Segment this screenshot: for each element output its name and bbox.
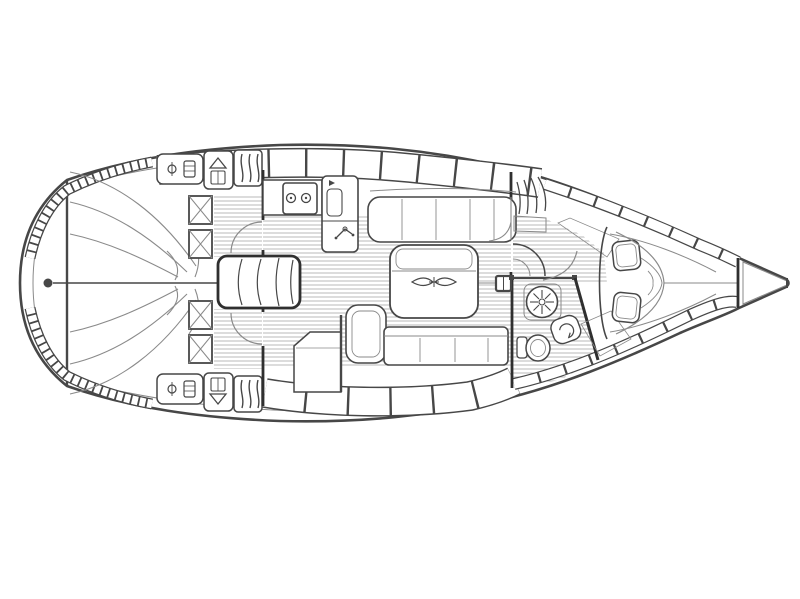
vent-box-icon xyxy=(157,374,203,404)
hatch-icon xyxy=(189,230,212,258)
louver-box-icon xyxy=(234,376,262,412)
stove-two-burner-icon xyxy=(283,183,317,214)
salon-table xyxy=(390,245,478,318)
yacht-floor-plan xyxy=(0,0,800,599)
vent-box-icon xyxy=(157,154,203,184)
companionway-steps xyxy=(218,256,300,308)
settee-port xyxy=(368,188,516,242)
mast-post xyxy=(496,276,511,291)
hatch-arrow-box-icon xyxy=(204,151,233,189)
hatch-icon xyxy=(189,301,212,329)
louver-box-icon xyxy=(234,150,262,186)
toilet-icon xyxy=(517,335,550,361)
rudder-post-dot xyxy=(44,279,53,288)
hatch-icon xyxy=(189,196,212,224)
galley-sink-module xyxy=(322,176,358,252)
yacht-floor-plan-page xyxy=(0,0,800,599)
hatch-arrow-box-icon xyxy=(204,373,233,411)
v-berth-pillow-starboard xyxy=(612,292,642,324)
hatch-icon xyxy=(189,335,212,363)
